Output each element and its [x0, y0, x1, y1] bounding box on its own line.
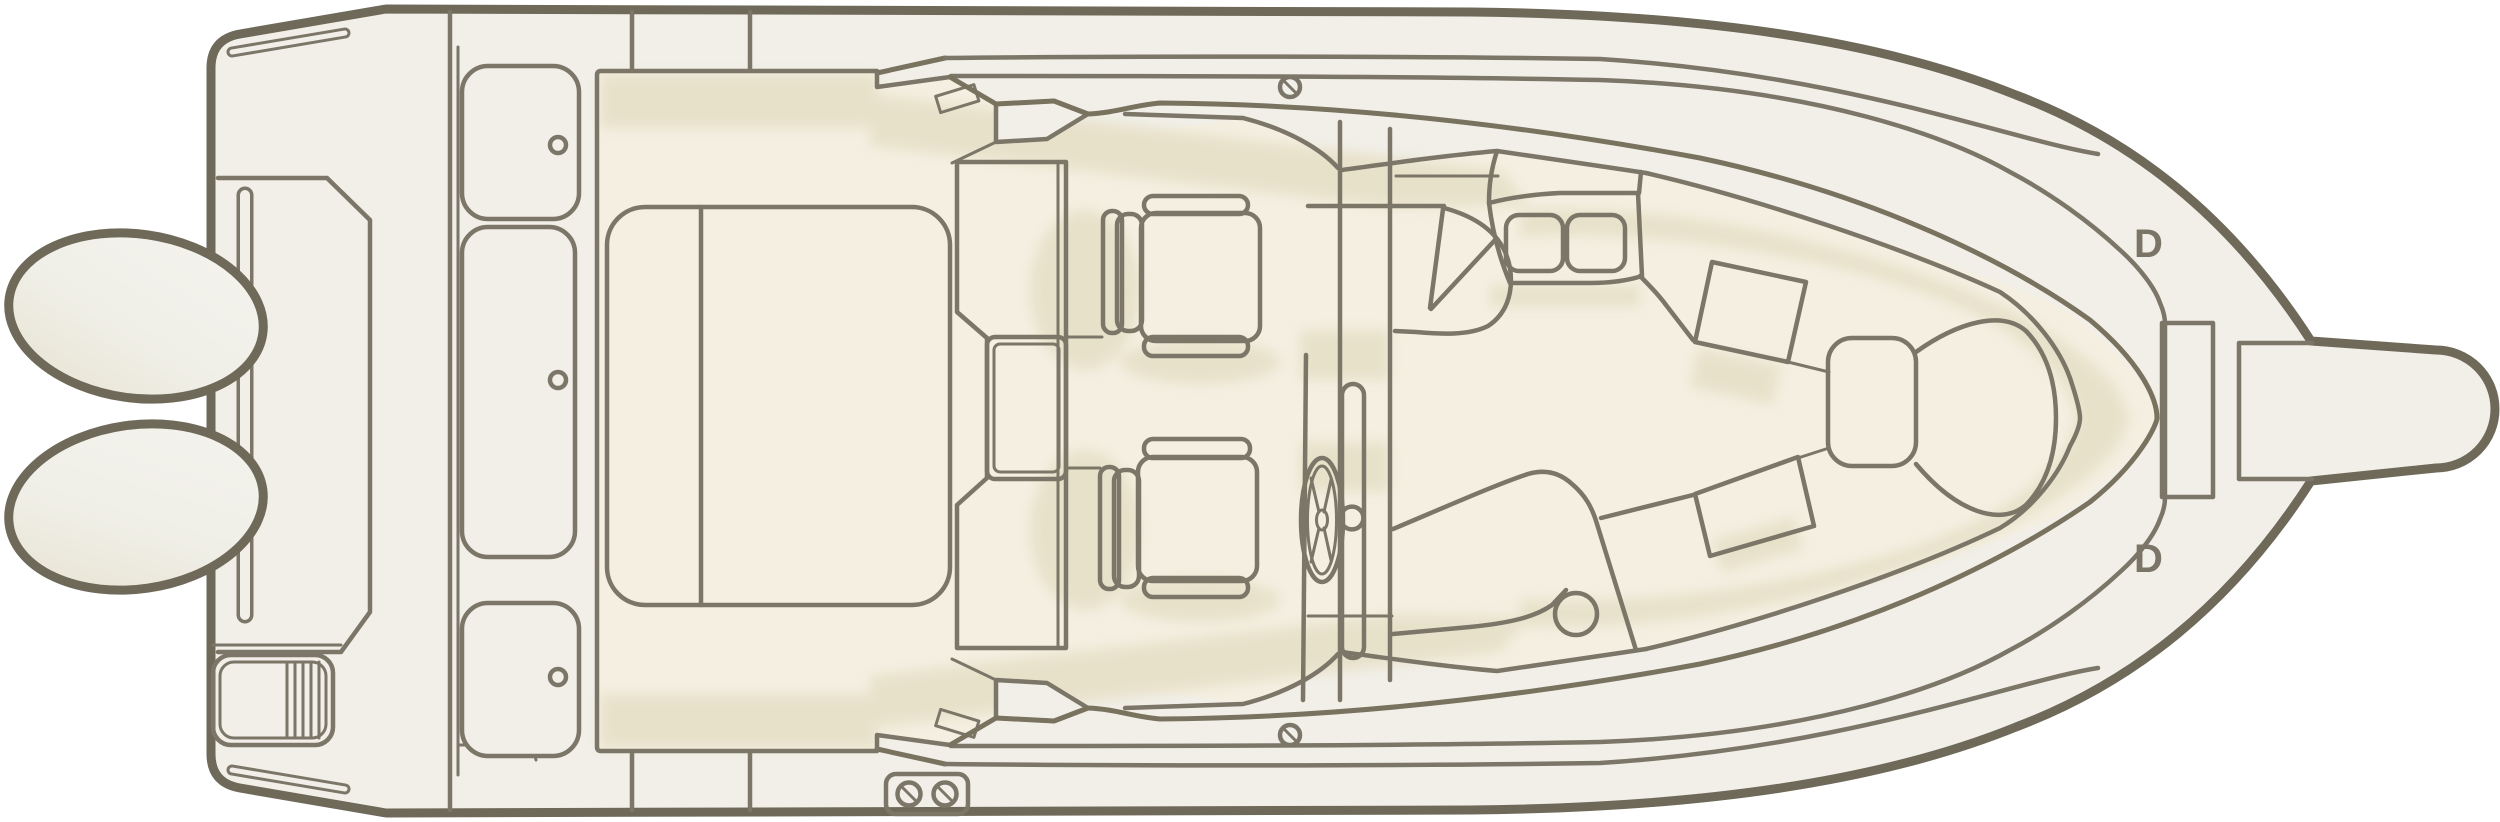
- svg-text:D: D: [2134, 222, 2163, 266]
- svg-text:D: D: [2134, 537, 2163, 581]
